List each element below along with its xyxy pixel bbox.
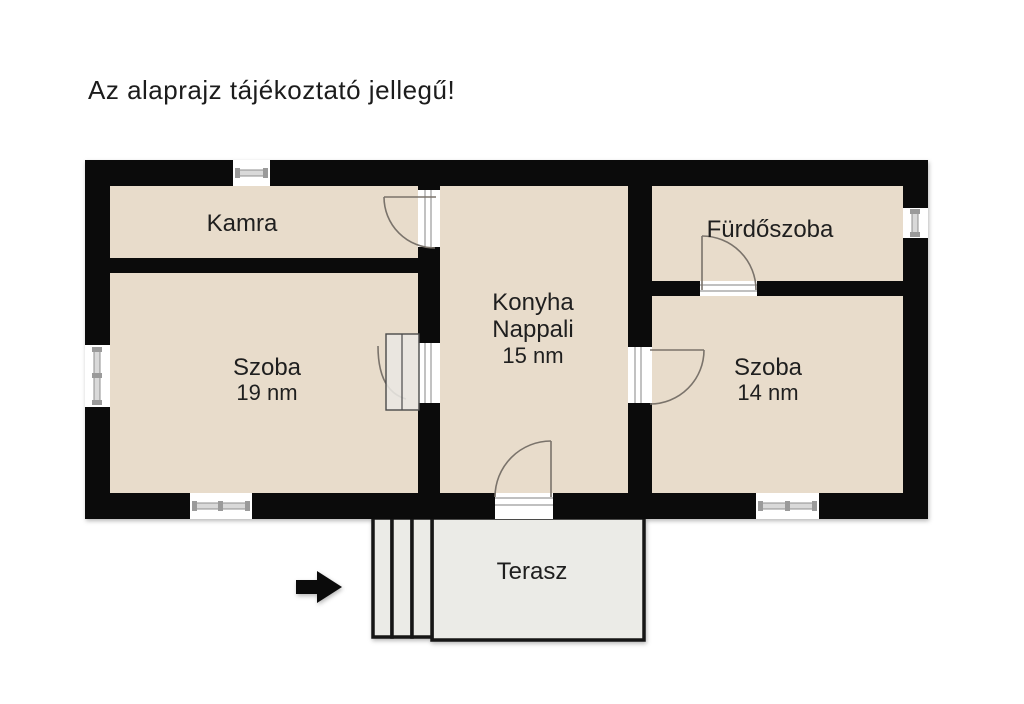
room-label-konyha-line1: Konyha [492, 289, 574, 316]
room-area-szoba-left: 19 nm [236, 380, 297, 405]
floor-plan-canvas: Az alaprajz tájékoztató jellegű! [0, 0, 1024, 704]
door-szoba-left [378, 334, 440, 410]
window-szoba-left [85, 345, 110, 407]
entrance-arrow-icon [296, 571, 342, 603]
window-szoba-left-bottom [190, 493, 252, 519]
room-area-konyha: 15 nm [502, 343, 563, 368]
window-furdoszoba-right [903, 208, 928, 238]
step-2 [392, 518, 412, 637]
room-label-konyha-line2: Nappali [492, 316, 573, 343]
step-1 [373, 518, 392, 637]
floor-plan-page: Az alaprajz tájékoztató jellegű! [0, 0, 1024, 704]
step-3 [412, 518, 432, 637]
window-kamra-top [233, 160, 270, 186]
room-label-szoba-left: Szoba [233, 354, 302, 381]
room-area-szoba-right: 14 nm [737, 380, 798, 405]
room-label-terasz: Terasz [497, 558, 568, 585]
room-label-furdoszoba: Fürdőszoba [707, 216, 834, 243]
room-label-kamra: Kamra [207, 210, 278, 237]
window-szoba-right-bottom [756, 493, 819, 519]
room-label-szoba-right: Szoba [734, 354, 803, 381]
disclaimer-title: Az alaprajz tájékoztató jellegű! [88, 75, 455, 105]
